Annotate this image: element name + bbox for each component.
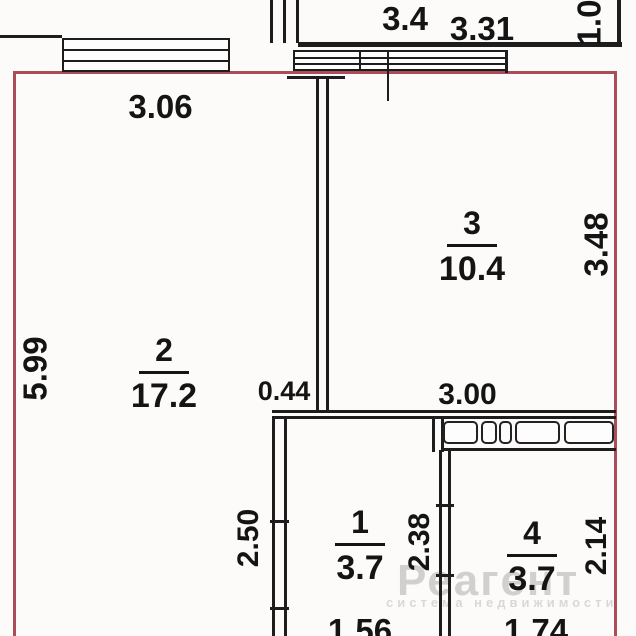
wall-top-triple-2	[283, 0, 286, 43]
window-room2	[62, 38, 230, 72]
room1-number: 1	[335, 506, 385, 546]
dim-room4-bottom-width: 1.74	[496, 614, 576, 636]
wall-room1-left-b	[284, 419, 287, 636]
closet-box-2	[481, 421, 497, 444]
dim-upper-width-b: 3.31	[432, 12, 532, 45]
room-label-2: 2 17.2	[122, 334, 206, 413]
watermark-subtitle: система недвижимости	[386, 595, 618, 610]
wall-1-4-tick1	[436, 504, 454, 507]
dim-room4-right-height: 2.14	[582, 504, 612, 588]
room3-number: 3	[447, 207, 497, 247]
window-room3	[293, 50, 507, 71]
wall-1-4-left	[439, 450, 442, 636]
dim-upper-width-a: 3.4	[372, 2, 438, 35]
room-label-4: 4 3.7	[500, 517, 564, 596]
dim-wall-stub: 0.44	[247, 378, 321, 405]
room1-area: 3.7	[327, 546, 393, 585]
room2-number: 2	[139, 334, 189, 374]
window-room3-tick2	[387, 50, 389, 71]
closet-box-1	[443, 421, 478, 444]
window-room3-line1	[294, 57, 506, 59]
outline-right	[614, 71, 617, 636]
closet-box-4	[515, 421, 560, 444]
wall-2-3-right	[326, 79, 329, 413]
wall-1-4-tick2	[436, 574, 454, 577]
dim-room3-right-height: 3.48	[580, 205, 613, 285]
dim-room1-bottom-width: 1.56	[320, 614, 400, 636]
window-room3-tick1	[359, 50, 361, 71]
wall-top-left-outer	[0, 35, 62, 38]
floor-plan: 2 17.2 3 10.4 1 3.7 4 3.7 3.4 3.31 1.0 3…	[0, 0, 636, 636]
room-label-3: 3 10.4	[432, 207, 512, 286]
dim-room2-top-width: 3.06	[113, 90, 208, 123]
dim-room1-left-height: 2.50	[234, 496, 264, 580]
wall-room4-top	[443, 448, 616, 451]
wall-top-triple-3	[296, 0, 299, 43]
room4-area: 3.7	[500, 557, 564, 596]
wall-upper-room-right	[617, 0, 621, 47]
dim-room2-left-height: 5.99	[19, 329, 52, 409]
wall-2-3-left	[316, 79, 319, 413]
wall-stub-right-window	[505, 50, 508, 73]
dim-room1-right-height: 2.38	[405, 500, 435, 584]
closet-box-5	[564, 421, 614, 444]
closet-box-3	[499, 421, 512, 444]
room2-area: 17.2	[122, 374, 206, 413]
window-room2-line2	[63, 60, 229, 62]
window-room2-line1	[63, 49, 229, 51]
wall-top-triple-1	[270, 0, 273, 43]
wall-1-4-right	[448, 450, 451, 636]
dim-upper-right-vertical: 1.0	[573, 0, 606, 63]
window-room3-line2	[294, 63, 506, 65]
room3-area: 10.4	[432, 247, 512, 286]
room4-number: 4	[507, 517, 557, 557]
wall-room1-left-a	[272, 419, 275, 636]
room-label-1: 1 3.7	[327, 506, 393, 585]
dimension-leader-line	[387, 71, 389, 101]
dim-room3-bottom-width: 3.00	[430, 380, 505, 410]
wall-1-4-connector-a	[432, 419, 435, 452]
wall-room1-left-tick1	[270, 520, 289, 523]
wall-room1-left-tick2	[270, 607, 289, 610]
wall-mid-horizontal-2	[272, 416, 616, 419]
